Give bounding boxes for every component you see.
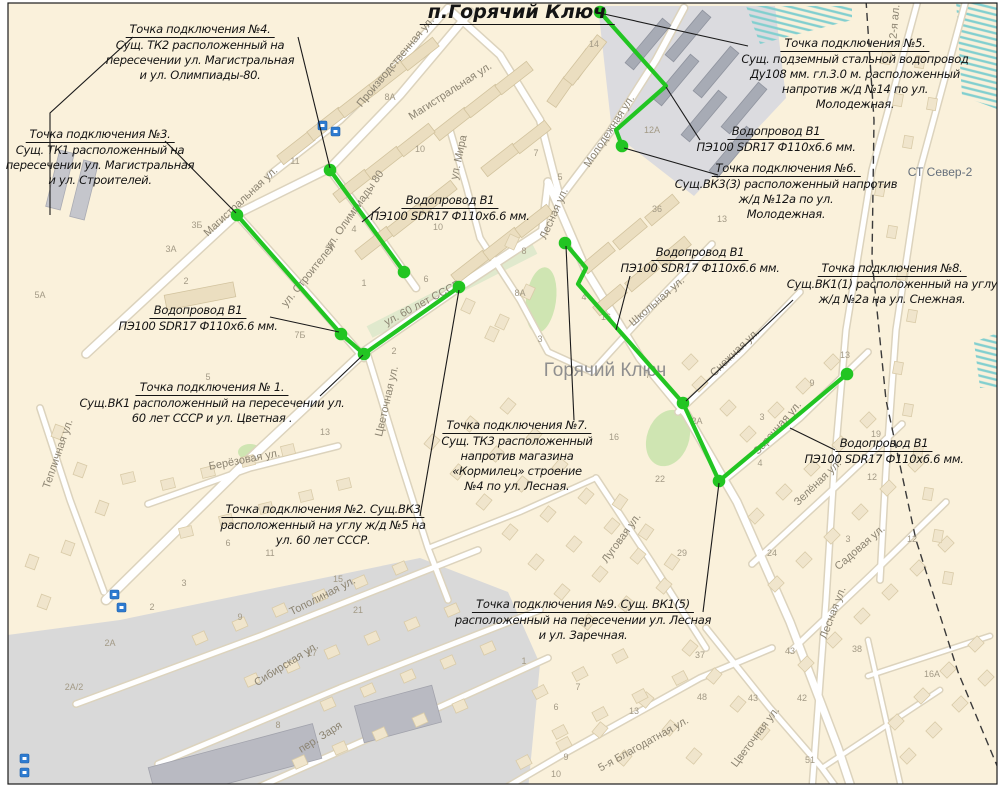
- building: [907, 309, 918, 322]
- connection-point-dot: [335, 328, 348, 341]
- house-number: 14: [589, 39, 599, 49]
- house-number: 6: [553, 702, 558, 712]
- house-number: 6: [423, 274, 428, 284]
- map-canvas[interactable]: 8А1412А36133Б3А5А27Б11104107588А61251316…: [0, 0, 1005, 790]
- building: [897, 267, 908, 280]
- house-number: 13: [629, 706, 639, 716]
- house-number: 13: [717, 214, 727, 224]
- house-number: 3: [759, 412, 764, 422]
- house-number: 9: [563, 752, 568, 762]
- house-number: 7Б: [295, 330, 306, 340]
- house-number: 51: [805, 755, 815, 765]
- house-number: 12А: [644, 125, 660, 135]
- house-number: 3: [181, 578, 186, 588]
- house-number: 36: [652, 204, 662, 214]
- house-number: 5А: [34, 290, 45, 300]
- house-number: 5: [205, 372, 210, 382]
- house-number: 10: [433, 222, 443, 232]
- connection-point-dot: [616, 140, 629, 153]
- house-number: 8: [275, 720, 280, 730]
- house-number: 7: [575, 682, 580, 692]
- building: [913, 445, 924, 458]
- house-number: 22: [655, 474, 665, 484]
- building: [887, 225, 898, 238]
- connection-point-dot: [559, 237, 572, 250]
- house-number: 3Б: [192, 220, 203, 230]
- house-number: 1: [361, 278, 366, 288]
- house-number: 4: [351, 224, 356, 234]
- house-number: 6: [225, 538, 230, 548]
- house-number: 13: [320, 427, 330, 437]
- building: [927, 97, 938, 110]
- bus-stop-icon: [110, 590, 119, 599]
- house-number: 37: [695, 650, 705, 660]
- house-number: 13: [840, 350, 850, 360]
- house-number: 12: [907, 534, 917, 544]
- building: [881, 51, 892, 64]
- map-svg: 8А1412А36133Б3А5А27Б11104107588А61251316…: [0, 0, 1005, 790]
- bus-stop-icon: [20, 768, 29, 777]
- building: [875, 183, 886, 196]
- house-number: 10: [415, 144, 425, 154]
- house-number: 43: [785, 646, 795, 656]
- house-number: 8: [521, 246, 526, 256]
- house-number: 2А/2: [65, 682, 84, 692]
- building: [923, 487, 934, 500]
- house-number: 10: [551, 769, 561, 779]
- house-number: 16А: [924, 669, 940, 679]
- map-content: 8А1412А36133Б3А5А27Б11104107588А61251316…: [0, 0, 1005, 790]
- house-number: 24: [767, 548, 777, 558]
- building: [903, 403, 914, 416]
- house-number: 12: [867, 472, 877, 482]
- house-number: 2: [391, 346, 396, 356]
- house-number: 3А: [165, 244, 176, 254]
- house-number: 16: [609, 432, 619, 442]
- house-number: 21: [353, 605, 363, 615]
- house-number: 9: [809, 378, 814, 388]
- house-number: 42: [797, 693, 807, 703]
- connection-point-dot: [231, 209, 244, 222]
- house-number: 19: [871, 429, 881, 439]
- house-number: 2: [149, 602, 154, 612]
- house-number: 11: [290, 156, 299, 166]
- bus-stop-icon: [20, 754, 29, 763]
- building: [933, 529, 944, 542]
- connection-point-dot: [677, 397, 690, 410]
- building: [903, 135, 914, 148]
- house-number: 8А: [384, 92, 395, 102]
- house-number: 8А: [514, 288, 525, 298]
- building: [893, 361, 904, 374]
- settlement-title: п.Горячий Ключ: [420, 1, 615, 25]
- house-number: 3: [845, 534, 850, 544]
- building: [915, 55, 926, 68]
- house-number: 2А: [104, 638, 115, 648]
- bus-stop-icon: [331, 127, 340, 136]
- bus-stop-icon: [117, 603, 126, 612]
- house-number: 7: [533, 148, 538, 158]
- house-number: 4: [757, 458, 762, 468]
- house-number: 38: [852, 644, 862, 654]
- house-number: 29: [677, 548, 687, 558]
- connection-point-dot: [398, 266, 411, 279]
- house-number: 43: [748, 693, 758, 703]
- connection-point-dot: [841, 368, 854, 381]
- house-number: 9: [237, 612, 242, 622]
- house-number: 48: [697, 692, 707, 702]
- connection-point-dot: [324, 164, 337, 177]
- building: [893, 93, 904, 106]
- house-number: 3: [537, 334, 542, 344]
- house-number: 2: [183, 276, 188, 286]
- settlement-title-text: п.Горячий Ключ: [420, 1, 615, 25]
- place-label: СТ Север-2: [908, 165, 973, 179]
- house-number: 1: [521, 656, 526, 666]
- building: [943, 571, 954, 584]
- house-number: 11: [265, 548, 274, 558]
- house-number: 5: [557, 172, 562, 182]
